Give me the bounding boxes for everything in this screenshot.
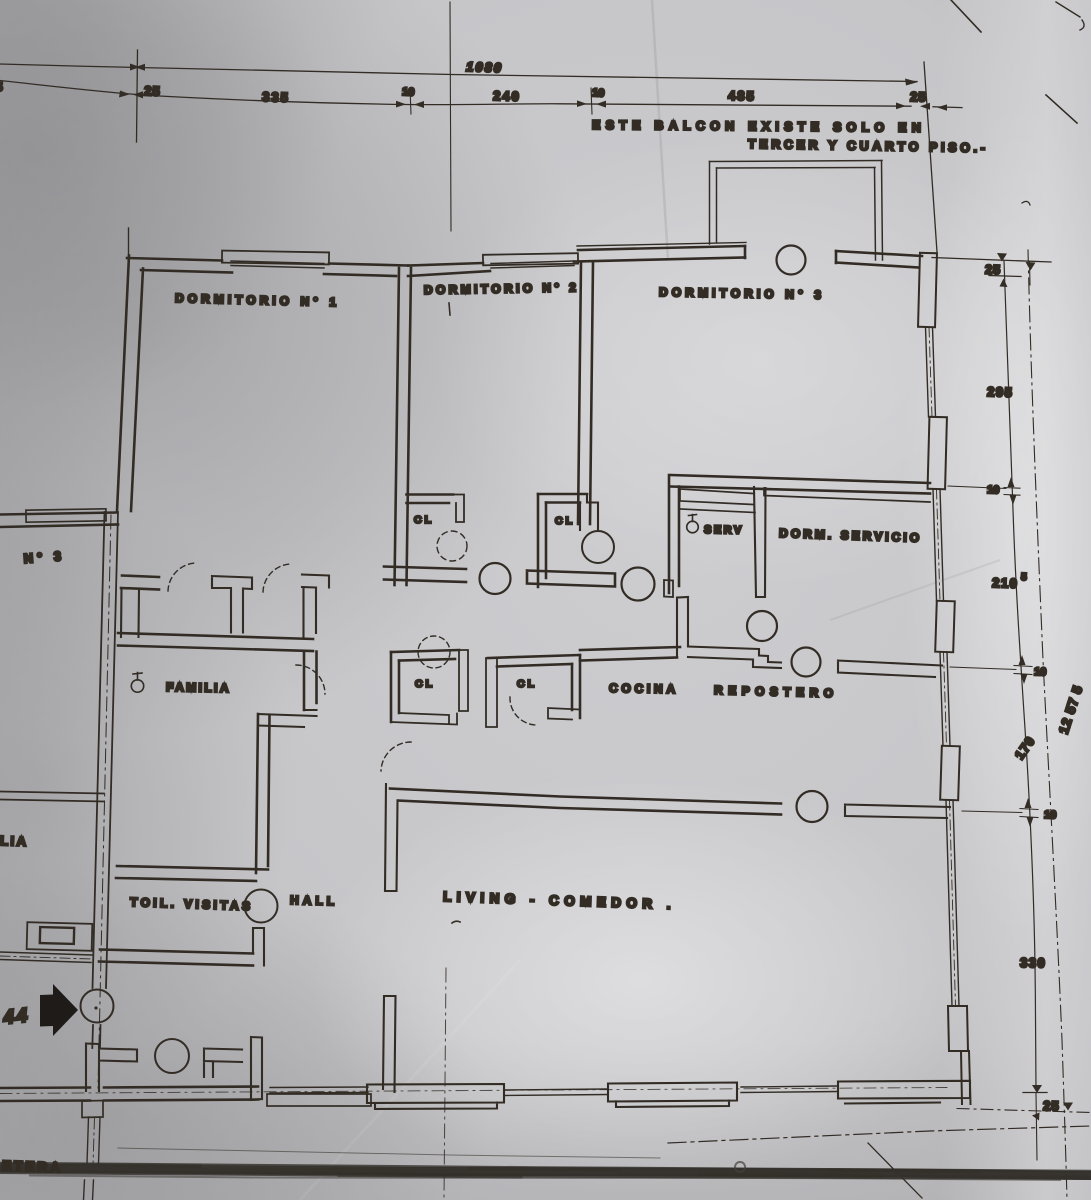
svg-text:485: 485 [728, 88, 756, 103]
svg-text:25: 25 [985, 263, 1001, 278]
svg-text:5: 5 [1021, 572, 1027, 583]
svg-text:ESTE BALCON EXISTE SOLO EN: ESTE BALCON EXISTE SOLO EN [592, 118, 924, 135]
svg-text:10: 10 [402, 86, 415, 99]
svg-text:DORMITORIO N° 3: DORMITORIO N° 3 [659, 285, 825, 302]
svg-text:N° 3: N° 3 [23, 548, 65, 566]
svg-text:295: 295 [987, 384, 1014, 400]
svg-text:DORMITORIO N° 2: DORMITORIO N° 2 [424, 280, 580, 297]
svg-text:210: 210 [992, 575, 1019, 591]
svg-text:25: 25 [144, 83, 161, 99]
svg-text:SERV: SERV [704, 524, 744, 537]
svg-text:5: 5 [0, 80, 3, 94]
svg-text:CL: CL [517, 678, 537, 690]
svg-text:44: 44 [1, 1004, 30, 1029]
svg-text:10: 10 [592, 87, 605, 100]
svg-text:HALL: HALL [290, 893, 338, 908]
svg-text:10: 10 [987, 484, 1000, 496]
svg-text:10: 10 [1034, 666, 1047, 678]
svg-text:330: 330 [1020, 955, 1046, 970]
svg-text:CL: CL [555, 515, 575, 527]
svg-text:CL: CL [415, 678, 435, 690]
svg-text:240: 240 [493, 88, 521, 104]
svg-text:25: 25 [910, 89, 927, 105]
svg-text:LIA: LIA [0, 833, 29, 849]
svg-text:10: 10 [1044, 809, 1057, 821]
svg-text:COCINA: COCINA [609, 681, 679, 696]
svg-text:FAMILIA: FAMILIA [166, 680, 232, 695]
svg-text:1080: 1080 [466, 59, 503, 75]
svg-text:335: 335 [262, 89, 290, 105]
svg-text:CL: CL [414, 514, 434, 526]
svg-text:ETERA: ETERA [2, 1158, 63, 1175]
